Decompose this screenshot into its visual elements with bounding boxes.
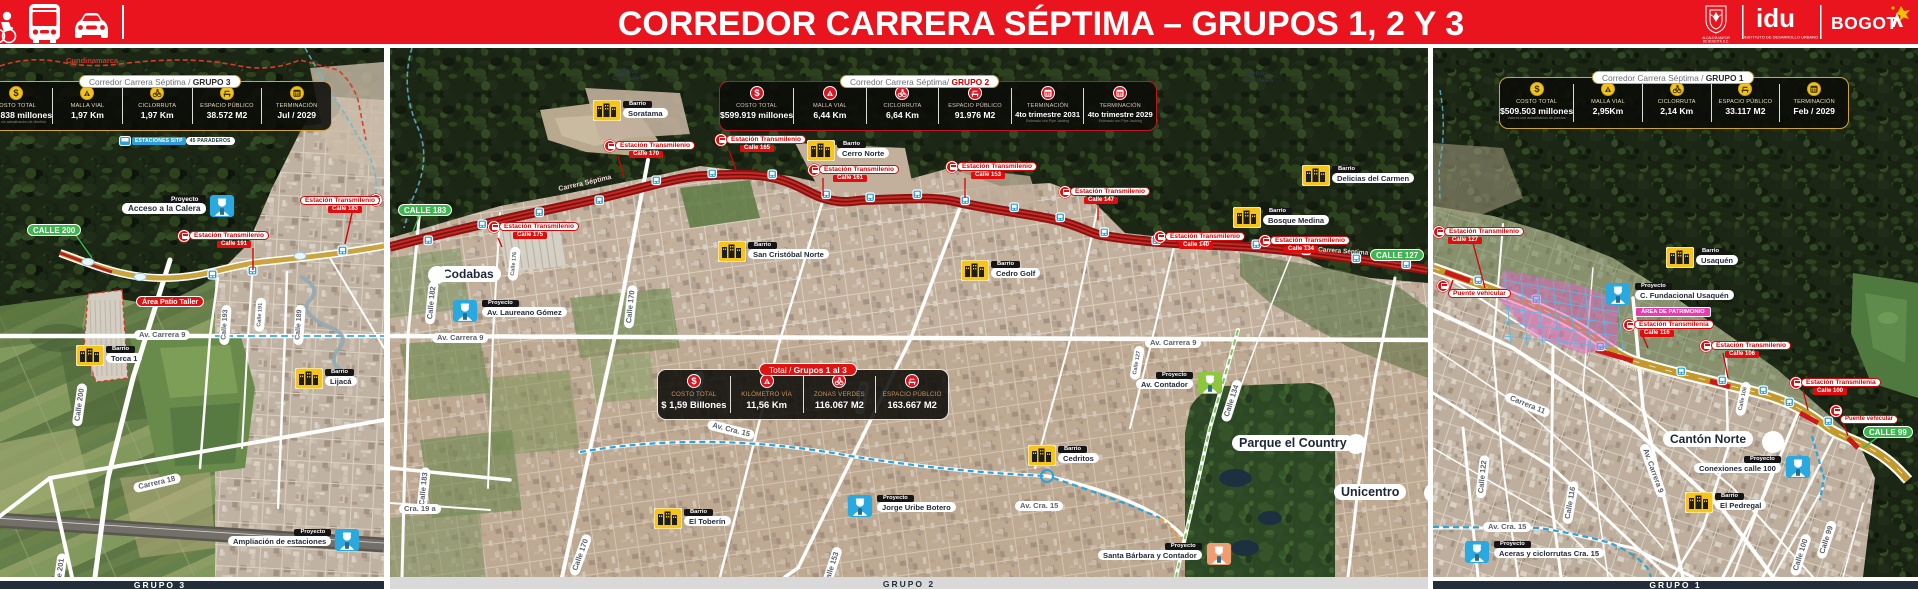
svg-text:$: $: [1534, 83, 1540, 94]
svg-text:BOGOT: BOGOT: [1831, 13, 1898, 33]
svg-text:$: $: [754, 87, 760, 98]
svg-text:$: $: [13, 87, 19, 98]
svg-text:idu: idu: [1756, 3, 1795, 33]
svg-text:$: $: [691, 375, 697, 386]
svg-text:DE BOGOTÁ D.C.: DE BOGOTÁ D.C.: [1703, 40, 1729, 44]
svg-text:INSTITUTO DE DESARROLLO URBANO: INSTITUTO DE DESARROLLO URBANO: [1744, 35, 1818, 40]
